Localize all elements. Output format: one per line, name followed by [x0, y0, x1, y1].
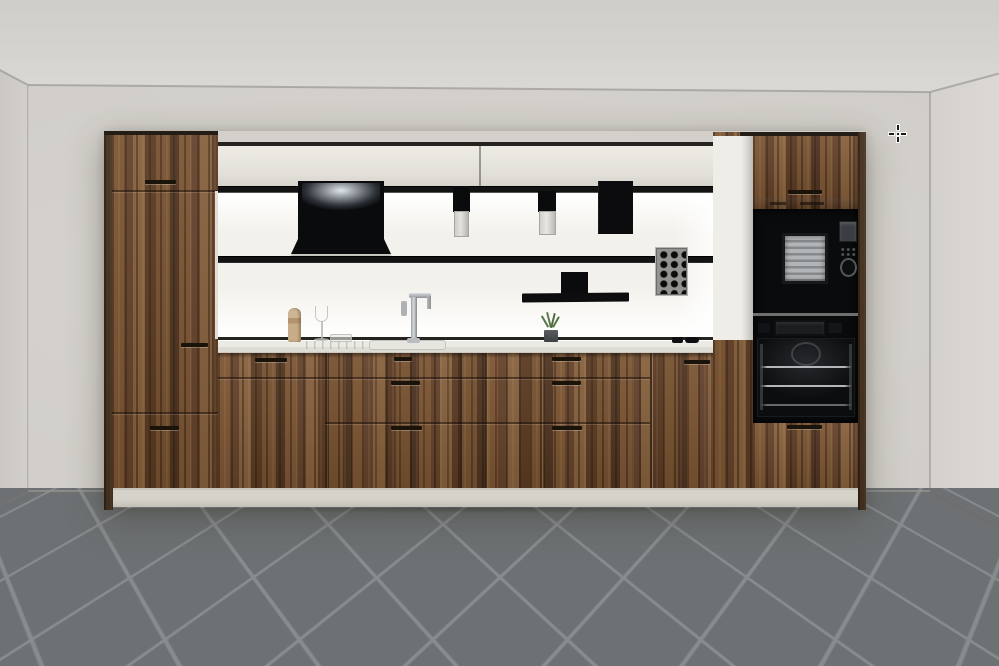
- microwave-buttons[interactable]: [840, 247, 856, 257]
- drawer-seam: [218, 377, 650, 379]
- hood-shadow: [291, 254, 391, 257]
- counter-object[interactable]: [685, 337, 699, 343]
- rail-bracket: [453, 186, 470, 212]
- microwave-window: [782, 233, 828, 284]
- top-door-right[interactable]: [753, 136, 858, 198]
- hood-flare: [291, 239, 391, 254]
- vent-mark: [800, 202, 824, 205]
- microwave-display: [839, 221, 857, 242]
- base-cabinets[interactable]: [218, 353, 714, 488]
- door-handle[interactable]: [145, 180, 176, 184]
- oven-rail: [760, 344, 763, 410]
- door-handle[interactable]: [787, 425, 822, 429]
- corner-line-left: [27, 85, 29, 492]
- door-handle[interactable]: [788, 190, 822, 194]
- unit-seam: [485, 353, 487, 488]
- tall-unit-right-side-panel: [858, 132, 866, 510]
- door-seam: [112, 412, 218, 414]
- door-handle[interactable]: [684, 360, 710, 364]
- door-handle[interactable]: [150, 426, 179, 430]
- unit-seam: [650, 353, 652, 488]
- glass-stem: [321, 321, 323, 339]
- end-panel[interactable]: [713, 136, 753, 340]
- door-handle[interactable]: [181, 343, 208, 347]
- backsplash-rail-bottom[interactable]: [218, 256, 714, 263]
- oven-fan: [791, 342, 821, 366]
- pepper-mill[interactable]: [288, 308, 301, 342]
- drawer-handle[interactable]: [391, 426, 422, 430]
- rail-shelf[interactable]: [522, 293, 629, 303]
- oven-rack: [760, 404, 852, 406]
- drawer-handle[interactable]: [255, 358, 287, 362]
- corner-line-right: [929, 92, 931, 492]
- oven-rack: [760, 385, 852, 387]
- plant[interactable]: [539, 311, 561, 342]
- ceiling[interactable]: [0, 0, 999, 95]
- counter-object[interactable]: [672, 337, 683, 343]
- shelf-bracket: [561, 272, 588, 295]
- towel[interactable]: [598, 181, 633, 234]
- glass-dish[interactable]: [330, 334, 352, 342]
- oven-rail: [849, 344, 852, 410]
- oven-rack: [760, 366, 852, 368]
- faucet-base: [407, 338, 420, 343]
- plinth[interactable]: [110, 488, 861, 507]
- glass-foot: [314, 338, 329, 341]
- unit-seam: [540, 353, 542, 488]
- microwave[interactable]: [753, 209, 858, 313]
- drawer-handle[interactable]: [552, 357, 581, 361]
- right-wall[interactable]: [929, 72, 999, 528]
- plant-pot: [544, 330, 558, 342]
- drainboard: [306, 341, 368, 349]
- bottom-door-right[interactable]: [753, 423, 858, 488]
- tall-unit-left-top-edge: [104, 131, 218, 135]
- glass-bowl: [315, 306, 328, 322]
- tall-unit-left[interactable]: [112, 131, 218, 488]
- unit-seam: [325, 353, 327, 488]
- upper-cabinets[interactable]: [218, 146, 714, 186]
- microwave-dial[interactable]: [840, 258, 857, 277]
- vent-mark: [770, 202, 786, 205]
- planner-viewport[interactable]: [0, 0, 999, 666]
- counter-underside-shadow: [218, 353, 714, 358]
- oven-control-block: [758, 323, 770, 333]
- rail-canister[interactable]: [454, 211, 469, 237]
- rail-pegboard[interactable]: [655, 247, 688, 296]
- faucet-riser: [411, 297, 417, 338]
- faucet-spout: [427, 296, 431, 309]
- drawer-handle[interactable]: [552, 381, 581, 385]
- drawer-handle[interactable]: [552, 426, 582, 430]
- faucet[interactable]: [399, 292, 433, 344]
- oven-grip[interactable]: [774, 320, 826, 336]
- upper-door-joint: [479, 146, 481, 186]
- oven-control-block: [828, 323, 842, 333]
- drawer-handle[interactable]: [391, 381, 420, 385]
- faucet-spray: [401, 301, 407, 316]
- rail-bracket: [538, 191, 556, 212]
- crosshair-cursor: [889, 125, 906, 142]
- wine-glass[interactable]: [314, 306, 330, 342]
- rail-canister[interactable]: [539, 211, 556, 235]
- oven[interactable]: [753, 316, 858, 423]
- drawer-handle[interactable]: [394, 357, 412, 361]
- extractor-hood[interactable]: [298, 181, 384, 239]
- door-seam: [112, 190, 218, 192]
- drawer-seam: [325, 422, 650, 424]
- hood-light-glow: [302, 183, 380, 217]
- left-wall[interactable]: [0, 69, 29, 506]
- unit-seam: [460, 353, 462, 488]
